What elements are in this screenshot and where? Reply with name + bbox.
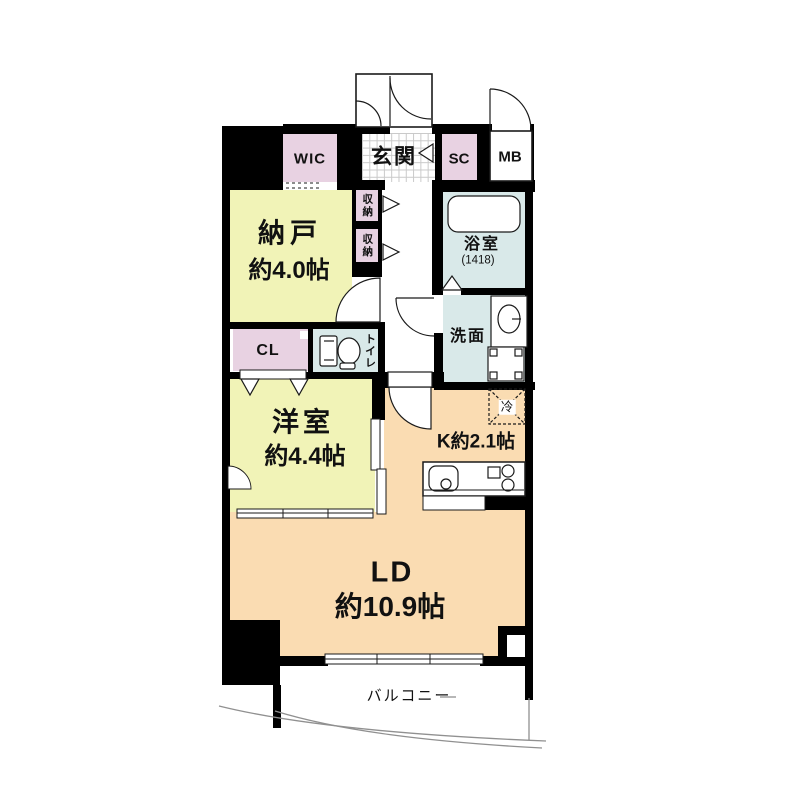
label-yoshitsu-name: 洋室 xyxy=(272,410,334,437)
label-shuno-lower: 収納 xyxy=(362,234,373,259)
label-ld-size: 約10.9帖 xyxy=(335,593,446,621)
label-bathroom-name: 浴室 xyxy=(464,237,500,253)
shuno-upper-door-icon xyxy=(383,196,399,212)
entrance-door-icon xyxy=(356,74,432,127)
senmen-door-arc xyxy=(396,298,434,336)
floor-plan: WIC 玄関 SC MB 納戸 約4.0帖 収納 収納 浴室 (1418) 洗面… xyxy=(0,0,800,800)
label-wic: WIC xyxy=(294,152,326,167)
label-genkan: 玄関 xyxy=(371,147,417,168)
wic-folding-door xyxy=(286,183,320,188)
label-cl: CL xyxy=(256,343,279,359)
balcony-rail xyxy=(219,697,546,748)
label-toilet: トイレ xyxy=(364,333,375,369)
label-nando-size: 約4.0帖 xyxy=(248,259,329,283)
label-refrigerator: 冷 xyxy=(499,400,516,415)
meter-box xyxy=(490,89,532,181)
label-senmen: 洗面 xyxy=(450,329,486,345)
label-shuno-upper: 収納 xyxy=(362,194,373,219)
shuno-lower-door-icon xyxy=(383,244,399,260)
label-nando-name: 納戸 xyxy=(258,221,322,248)
label-ld-name: LD xyxy=(371,559,414,588)
label-bathroom-size: (1418) xyxy=(461,255,494,267)
area-ld-lower xyxy=(280,622,525,658)
label-mb: MB xyxy=(498,150,521,165)
label-balcony: バルコニー xyxy=(367,689,452,704)
label-sc: SC xyxy=(449,152,470,167)
room-nando xyxy=(228,190,352,322)
label-yoshitsu-size: 約4.4帖 xyxy=(264,445,345,469)
label-kitchen: K約2.1帖 xyxy=(437,433,515,452)
